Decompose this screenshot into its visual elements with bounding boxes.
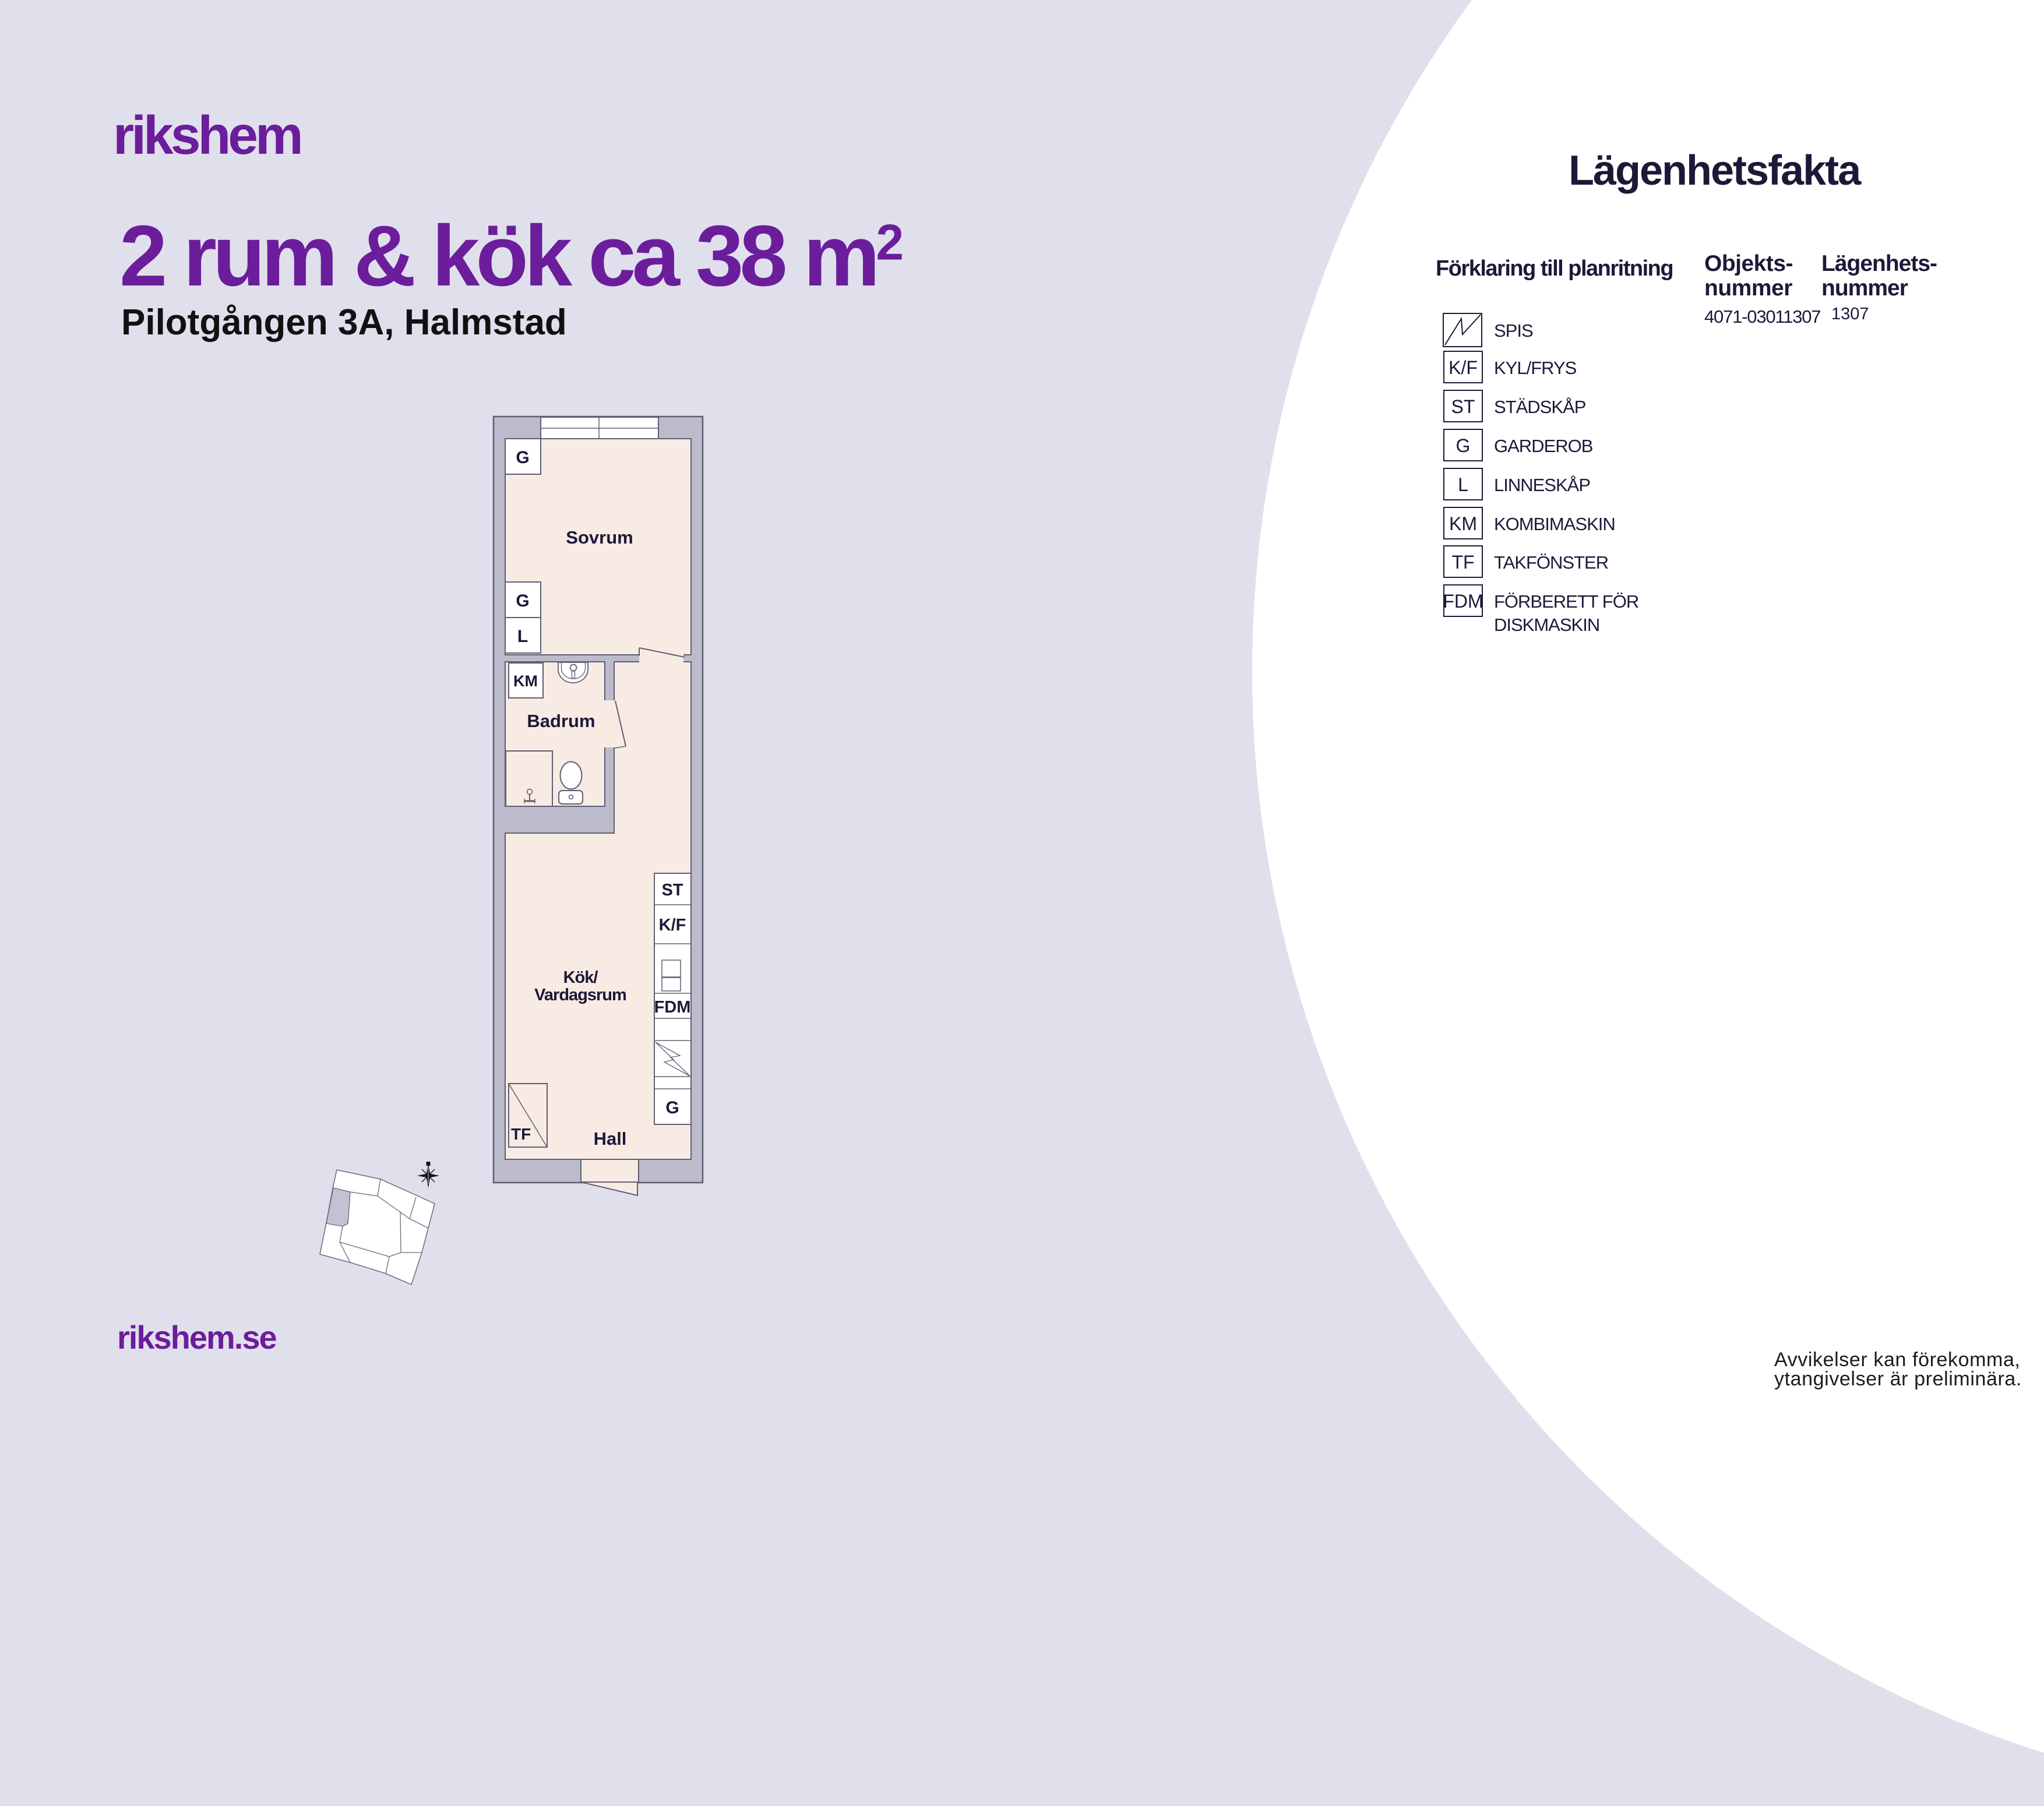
svg-text:Vardagsrum: Vardagsrum (534, 986, 626, 1004)
svg-text:G: G (665, 1098, 679, 1117)
svg-text:DISKMASKIN: DISKMASKIN (1494, 615, 1599, 635)
svg-text:SPIS: SPIS (1494, 320, 1533, 341)
svg-text:G: G (516, 591, 529, 611)
svg-text:Sovrum: Sovrum (566, 527, 633, 548)
svg-text:KM: KM (1449, 513, 1477, 534)
svg-text:K/F: K/F (1449, 357, 1478, 378)
svg-text:TAKFÖNSTER: TAKFÖNSTER (1494, 552, 1608, 573)
svg-text:GARDEROB: GARDEROB (1494, 436, 1593, 456)
svg-text:KOMBIMASKIN: KOMBIMASKIN (1494, 514, 1615, 534)
svg-text:KM: KM (513, 672, 538, 690)
svg-text:Badrum: Badrum (527, 711, 595, 731)
svg-text:ST: ST (1451, 396, 1475, 417)
svg-text:K/F: K/F (659, 916, 686, 934)
svg-text:G: G (1456, 435, 1471, 456)
svg-text:ST: ST (661, 881, 683, 900)
svg-text:FDM: FDM (1443, 591, 1483, 612)
svg-text:STÄDSKÅP: STÄDSKÅP (1494, 397, 1586, 417)
svg-text:L: L (1458, 474, 1468, 495)
svg-text:G: G (516, 448, 529, 467)
svg-text:KYL/FRYS: KYL/FRYS (1494, 358, 1577, 378)
svg-text:TF: TF (1451, 552, 1474, 573)
svg-text:LINNESKÅP: LINNESKÅP (1494, 475, 1590, 495)
svg-text:TF: TF (511, 1125, 531, 1143)
svg-text:L: L (517, 627, 528, 646)
svg-text:Kök/: Kök/ (563, 968, 598, 987)
svg-text:FDM: FDM (654, 998, 691, 1017)
svg-text:FÖRBERETT FÖR: FÖRBERETT FÖR (1494, 591, 1638, 612)
svg-text:Hall: Hall (594, 1128, 627, 1149)
